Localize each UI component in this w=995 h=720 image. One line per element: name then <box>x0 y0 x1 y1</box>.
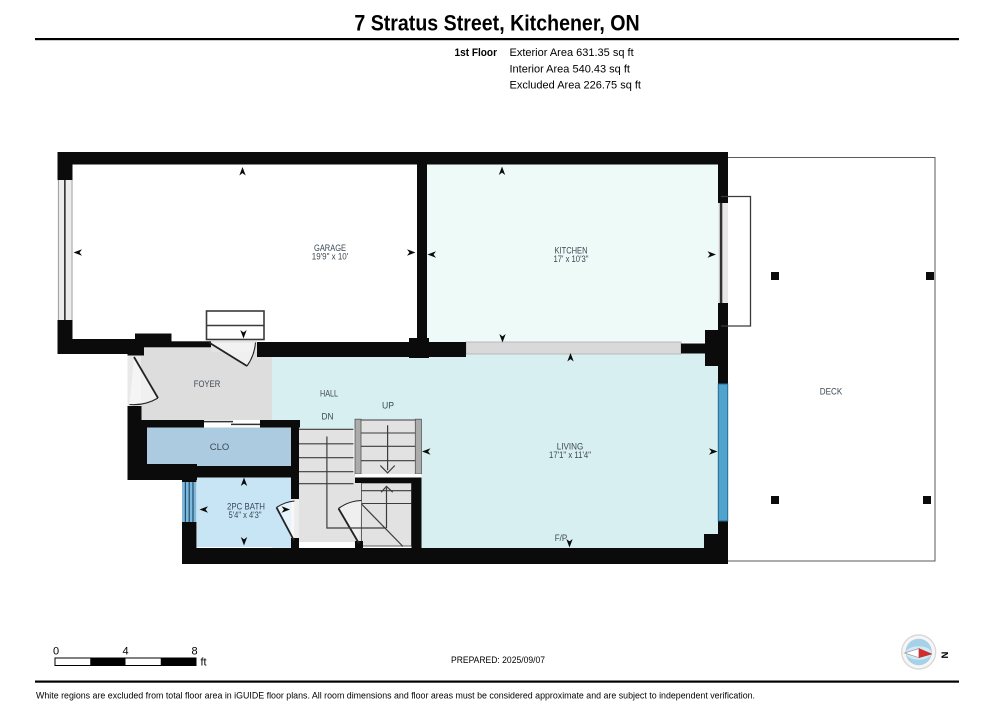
svg-text:0: 0 <box>53 646 59 658</box>
svg-text:Excluded Area 226.75 sq ft: Excluded Area 226.75 sq ft <box>510 80 641 92</box>
svg-text:DECK: DECK <box>820 387 843 397</box>
svg-text:4: 4 <box>122 646 128 658</box>
svg-text:Exterior Area 631.35 sq ft: Exterior Area 631.35 sq ft <box>510 47 634 59</box>
svg-text:ft: ft <box>201 657 207 669</box>
svg-text:17' x 10'3": 17' x 10'3" <box>554 254 589 264</box>
svg-text:1st Floor: 1st Floor <box>455 47 498 59</box>
svg-text:PREPARED: 2025/09/07: PREPARED: 2025/09/07 <box>451 655 545 666</box>
svg-text:CLO: CLO <box>210 442 230 453</box>
svg-text:DN: DN <box>322 412 334 423</box>
svg-text:5'4" x 4'3": 5'4" x 4'3" <box>229 510 262 520</box>
svg-text:17'1" x 11'4": 17'1" x 11'4" <box>549 450 591 460</box>
svg-text:FOYER: FOYER <box>194 379 221 390</box>
svg-text:UP: UP <box>382 401 394 412</box>
svg-text:HALL: HALL <box>320 389 338 400</box>
svg-text:N: N <box>939 652 950 659</box>
svg-text:White regions are excluded fro: White regions are excluded from total fl… <box>36 691 755 702</box>
svg-text:F/P: F/P <box>555 533 568 543</box>
svg-text:Interior Area 540.43 sq ft: Interior Area 540.43 sq ft <box>510 63 630 75</box>
svg-text:19'9" x 10': 19'9" x 10' <box>312 251 349 261</box>
svg-text:7 Stratus Street, Kitchener, O: 7 Stratus Street, Kitchener, ON <box>354 12 639 36</box>
svg-text:8: 8 <box>191 646 197 658</box>
